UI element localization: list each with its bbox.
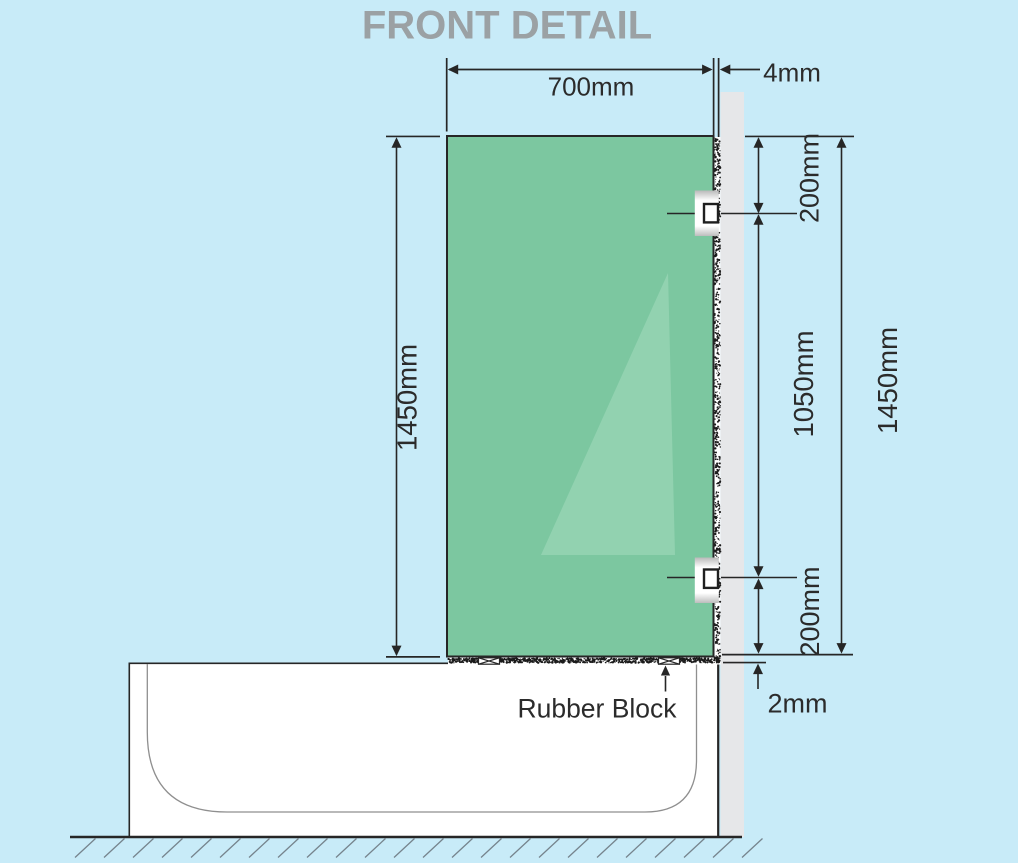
svg-text:1050mm: 1050mm <box>788 331 819 438</box>
svg-text:1450mm: 1450mm <box>872 327 903 434</box>
svg-text:200mm: 200mm <box>795 133 825 223</box>
svg-text:200mm: 200mm <box>795 566 825 656</box>
svg-text:Rubber Block: Rubber Block <box>517 694 677 724</box>
svg-text:FRONT DETAIL: FRONT DETAIL <box>362 4 652 48</box>
svg-text:700mm: 700mm <box>548 72 635 102</box>
svg-text:1450mm: 1450mm <box>392 344 423 451</box>
svg-text:4mm: 4mm <box>763 58 821 88</box>
svg-text:2mm: 2mm <box>768 689 828 719</box>
